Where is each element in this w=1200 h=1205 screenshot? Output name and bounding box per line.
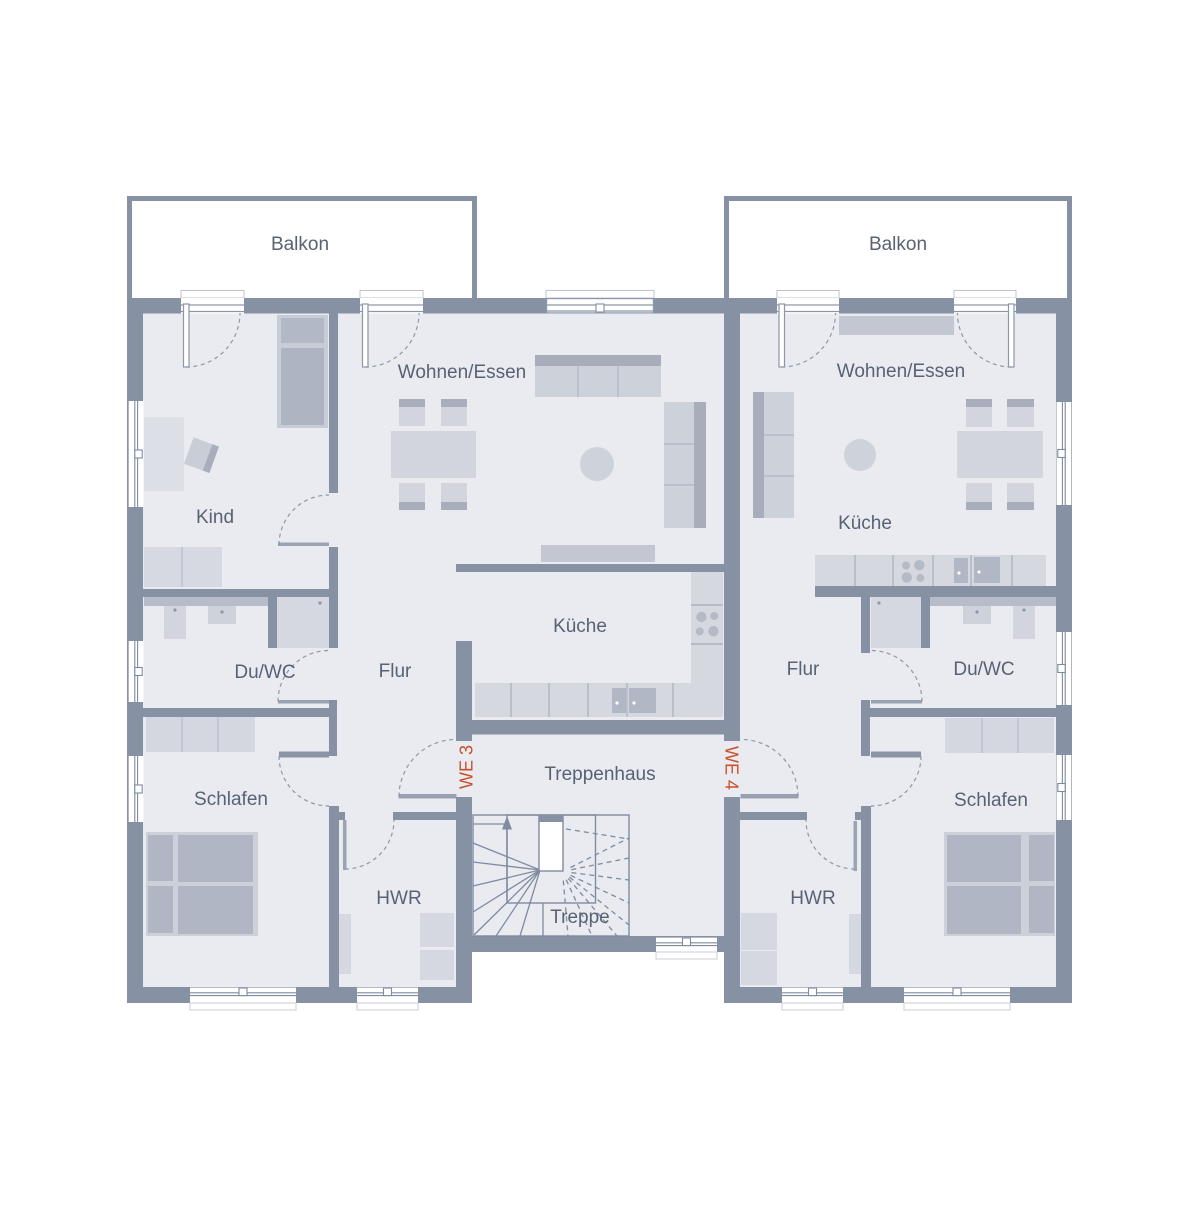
svg-text:Küche: Küche: [838, 513, 892, 534]
svg-text:Balkon: Balkon: [271, 234, 329, 255]
svg-text:Du/WC: Du/WC: [953, 659, 1014, 680]
svg-text:WE 3: WE 3: [457, 745, 477, 789]
svg-text:Schlafen: Schlafen: [954, 790, 1028, 811]
svg-text:Balkon: Balkon: [869, 234, 927, 255]
svg-text:Wohnen/Essen: Wohnen/Essen: [398, 362, 527, 383]
svg-text:Treppe: Treppe: [550, 907, 610, 928]
svg-text:Schlafen: Schlafen: [194, 789, 268, 810]
svg-text:Wohnen/Essen: Wohnen/Essen: [837, 361, 966, 382]
svg-text:WE 4: WE 4: [722, 746, 742, 790]
svg-text:Flur: Flur: [379, 661, 412, 682]
svg-text:Flur: Flur: [787, 659, 820, 680]
svg-text:Küche: Küche: [553, 616, 607, 637]
svg-text:Kind: Kind: [196, 507, 234, 528]
svg-text:HWR: HWR: [790, 888, 835, 909]
svg-text:Du/WC: Du/WC: [234, 662, 295, 683]
svg-text:Treppenhaus: Treppenhaus: [544, 764, 655, 785]
svg-text:HWR: HWR: [376, 888, 421, 909]
